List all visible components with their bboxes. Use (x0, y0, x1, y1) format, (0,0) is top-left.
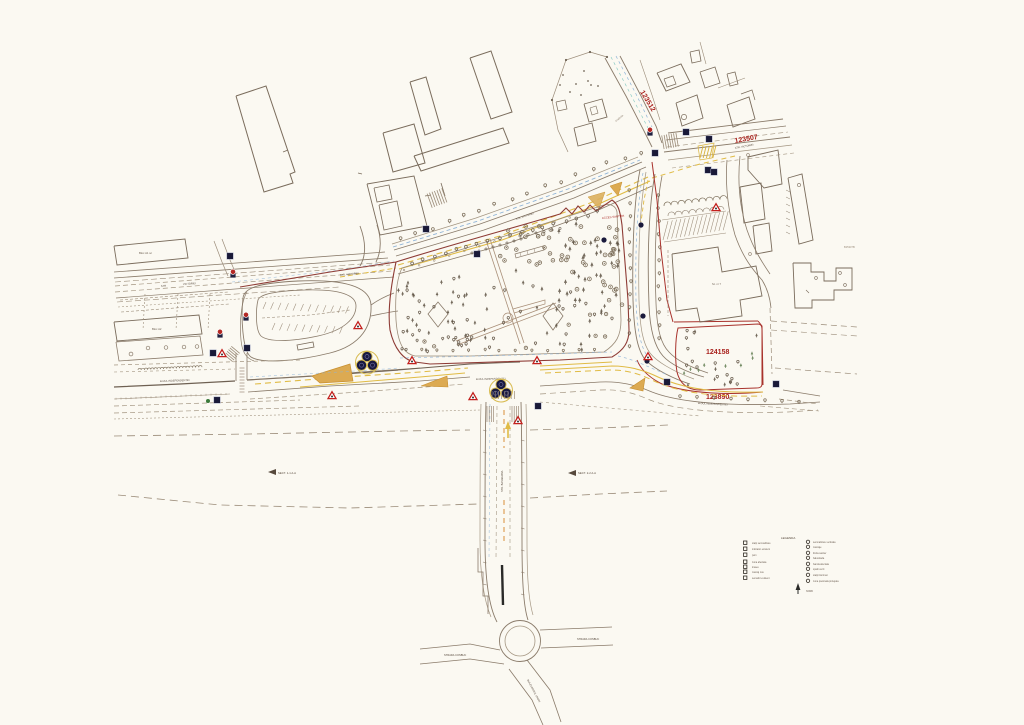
svg-text:Bloc A2: Bloc A2 (152, 327, 162, 331)
svg-text:B1534?B: B1534?B (844, 245, 855, 249)
svg-text:LEGENDA: LEGENDA (781, 536, 795, 540)
svg-text:STRADA COSBUC: STRADA COSBUC (577, 637, 599, 641)
svg-text:balustrada: balustrada (813, 557, 825, 560)
svg-text:STR: STR (161, 284, 167, 288)
svg-text:stalpi iluminat: stalpi iluminat (813, 574, 828, 577)
svg-text:pom: pom (752, 554, 757, 557)
svg-text:Bloc A1 sc: Bloc A1 sc (139, 251, 153, 255)
svg-text:spatii verzi: spatii verzi (813, 568, 825, 571)
svg-text:semafor existent: semafor existent (752, 577, 770, 580)
svg-text:stalp semnalizare: stalp semnalizare (752, 542, 771, 545)
svg-text:SECT. 2-2 A-A: SECT. 2-2 A-A (578, 471, 596, 475)
svg-text:STR. BASARABIA: STR. BASARABIA (500, 470, 504, 492)
svg-text:traseu: traseu (752, 566, 759, 569)
svg-text:indicator existent: indicator existent (752, 548, 770, 551)
svg-text:zona pietonala protejata: zona pietonala protejata (813, 580, 839, 583)
svg-text:limita santier: limita santier (813, 552, 827, 555)
svg-text:Sc. nr 7: Sc. nr 7 (712, 282, 721, 286)
svg-text:zona afectata: zona afectata (752, 561, 767, 564)
svg-text:123890: 123890 (706, 394, 729, 401)
svg-text:semnalizare verticala: semnalizare verticala (813, 541, 836, 544)
svg-text:SECT. 1-1 A-A: SECT. 1-1 A-A (278, 471, 296, 475)
svg-text:124158: 124158 (706, 349, 729, 356)
svg-text:marcaj nou: marcaj nou (752, 571, 764, 574)
svg-text:marcaje: marcaje (813, 546, 822, 549)
svg-text:STRADA COSBUC: STRADA COSBUC (444, 653, 466, 657)
svg-text:banda afectata: banda afectata (813, 563, 829, 566)
svg-text:NORD: NORD (806, 590, 813, 593)
